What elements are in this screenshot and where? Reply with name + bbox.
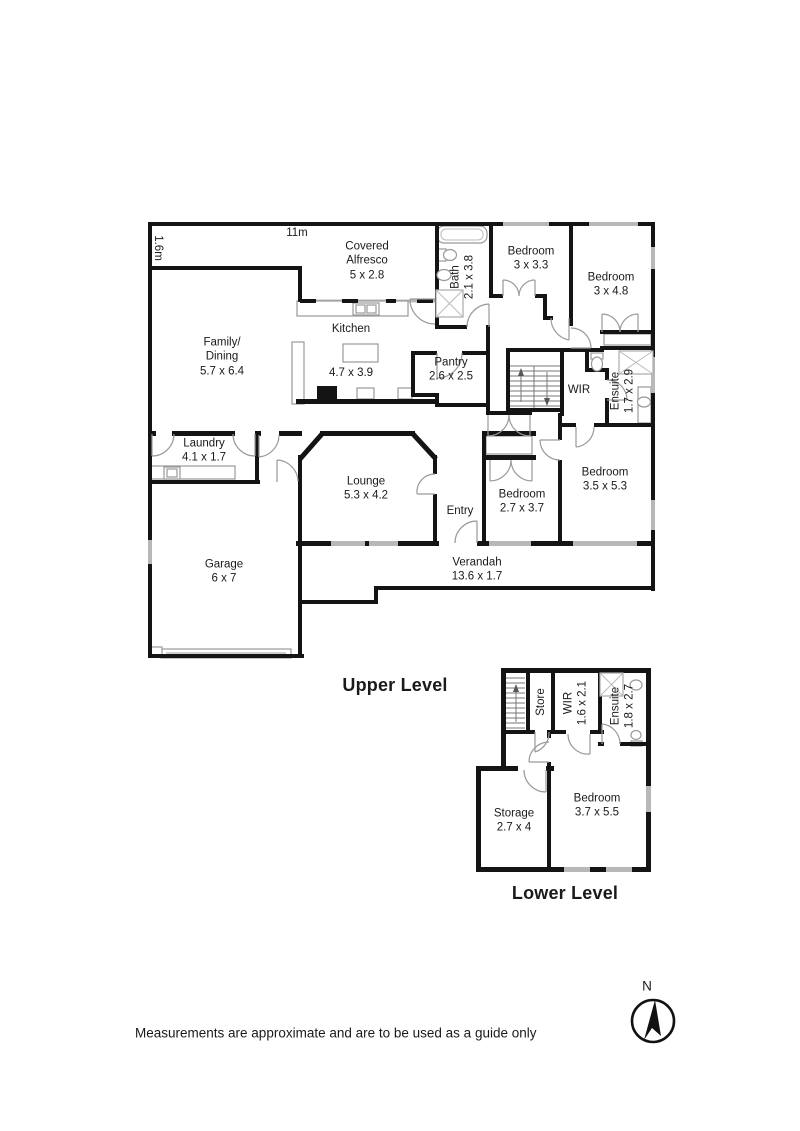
room-label-covered-alfresco: CoveredAlfresco5 x 2.8 [345, 239, 388, 282]
room-label-verandah: Verandah13.6 x 1.7 [452, 556, 503, 585]
dim-label-11m: 11m [286, 226, 308, 240]
room-label-bath: Bath2.1 x 3.8 [449, 255, 478, 299]
lower-level-title: Lower Level [512, 882, 618, 905]
floor-plan-page: 11m 1.6m CoveredAlfresco5 x 2.8 Bath2.1 … [0, 0, 800, 1131]
room-label-bedroom-3: Bedroom2.7 x 3.7 [499, 488, 546, 517]
room-label-entry: Entry [447, 504, 474, 518]
windows-layer [148, 222, 655, 872]
stairs-upper [509, 366, 560, 408]
room-label-ensuite-upper: Ensuite1.7 x 2.9 [609, 369, 638, 413]
dim-label-1-6m: 1.6m [151, 235, 165, 261]
room-label-wir-upper: WIR [568, 383, 590, 397]
room-label-kitchen: Kitchen [332, 322, 370, 336]
room-label-family-dining: Family/Dining5.7 x 6.4 [200, 335, 244, 378]
room-label-store: Store [534, 688, 548, 716]
room-label-storage: Storage2.7 x 4 [494, 807, 534, 836]
room-label-pantry: Pantry2.6 x 2.5 [429, 356, 473, 385]
room-label-bedroom-4: Bedroom3.5 x 5.3 [582, 466, 629, 495]
upper-level-title: Upper Level [342, 674, 447, 697]
room-label-bedroom-2: Bedroom3 x 4.8 [588, 271, 635, 300]
stairs-lower [506, 678, 525, 728]
compass-icon [632, 1000, 674, 1042]
room-label-garage: Garage6 x 7 [205, 558, 243, 587]
room-label-ensuite-lower: Ensuite1.8 x 2.7 [609, 684, 638, 728]
room-label-bedroom-5: Bedroom3.7 x 5.5 [574, 792, 621, 821]
room-label-laundry: Laundry4.1 x 1.7 [182, 437, 226, 466]
room-label-bedroom-1: Bedroom3 x 3.3 [508, 245, 555, 274]
room-label-kitchen-dims: 4.7 x 3.9 [329, 366, 373, 380]
walls-layer [148, 222, 655, 872]
disclaimer-text: Measurements are approximate and are to … [135, 1026, 537, 1041]
room-label-wir-lower: WIR1.6 x 2.1 [562, 681, 591, 725]
room-label-lounge: Lounge5.3 x 4.2 [344, 475, 388, 504]
compass-north-label: N [642, 979, 652, 994]
floor-plan-drawing [0, 0, 800, 1131]
